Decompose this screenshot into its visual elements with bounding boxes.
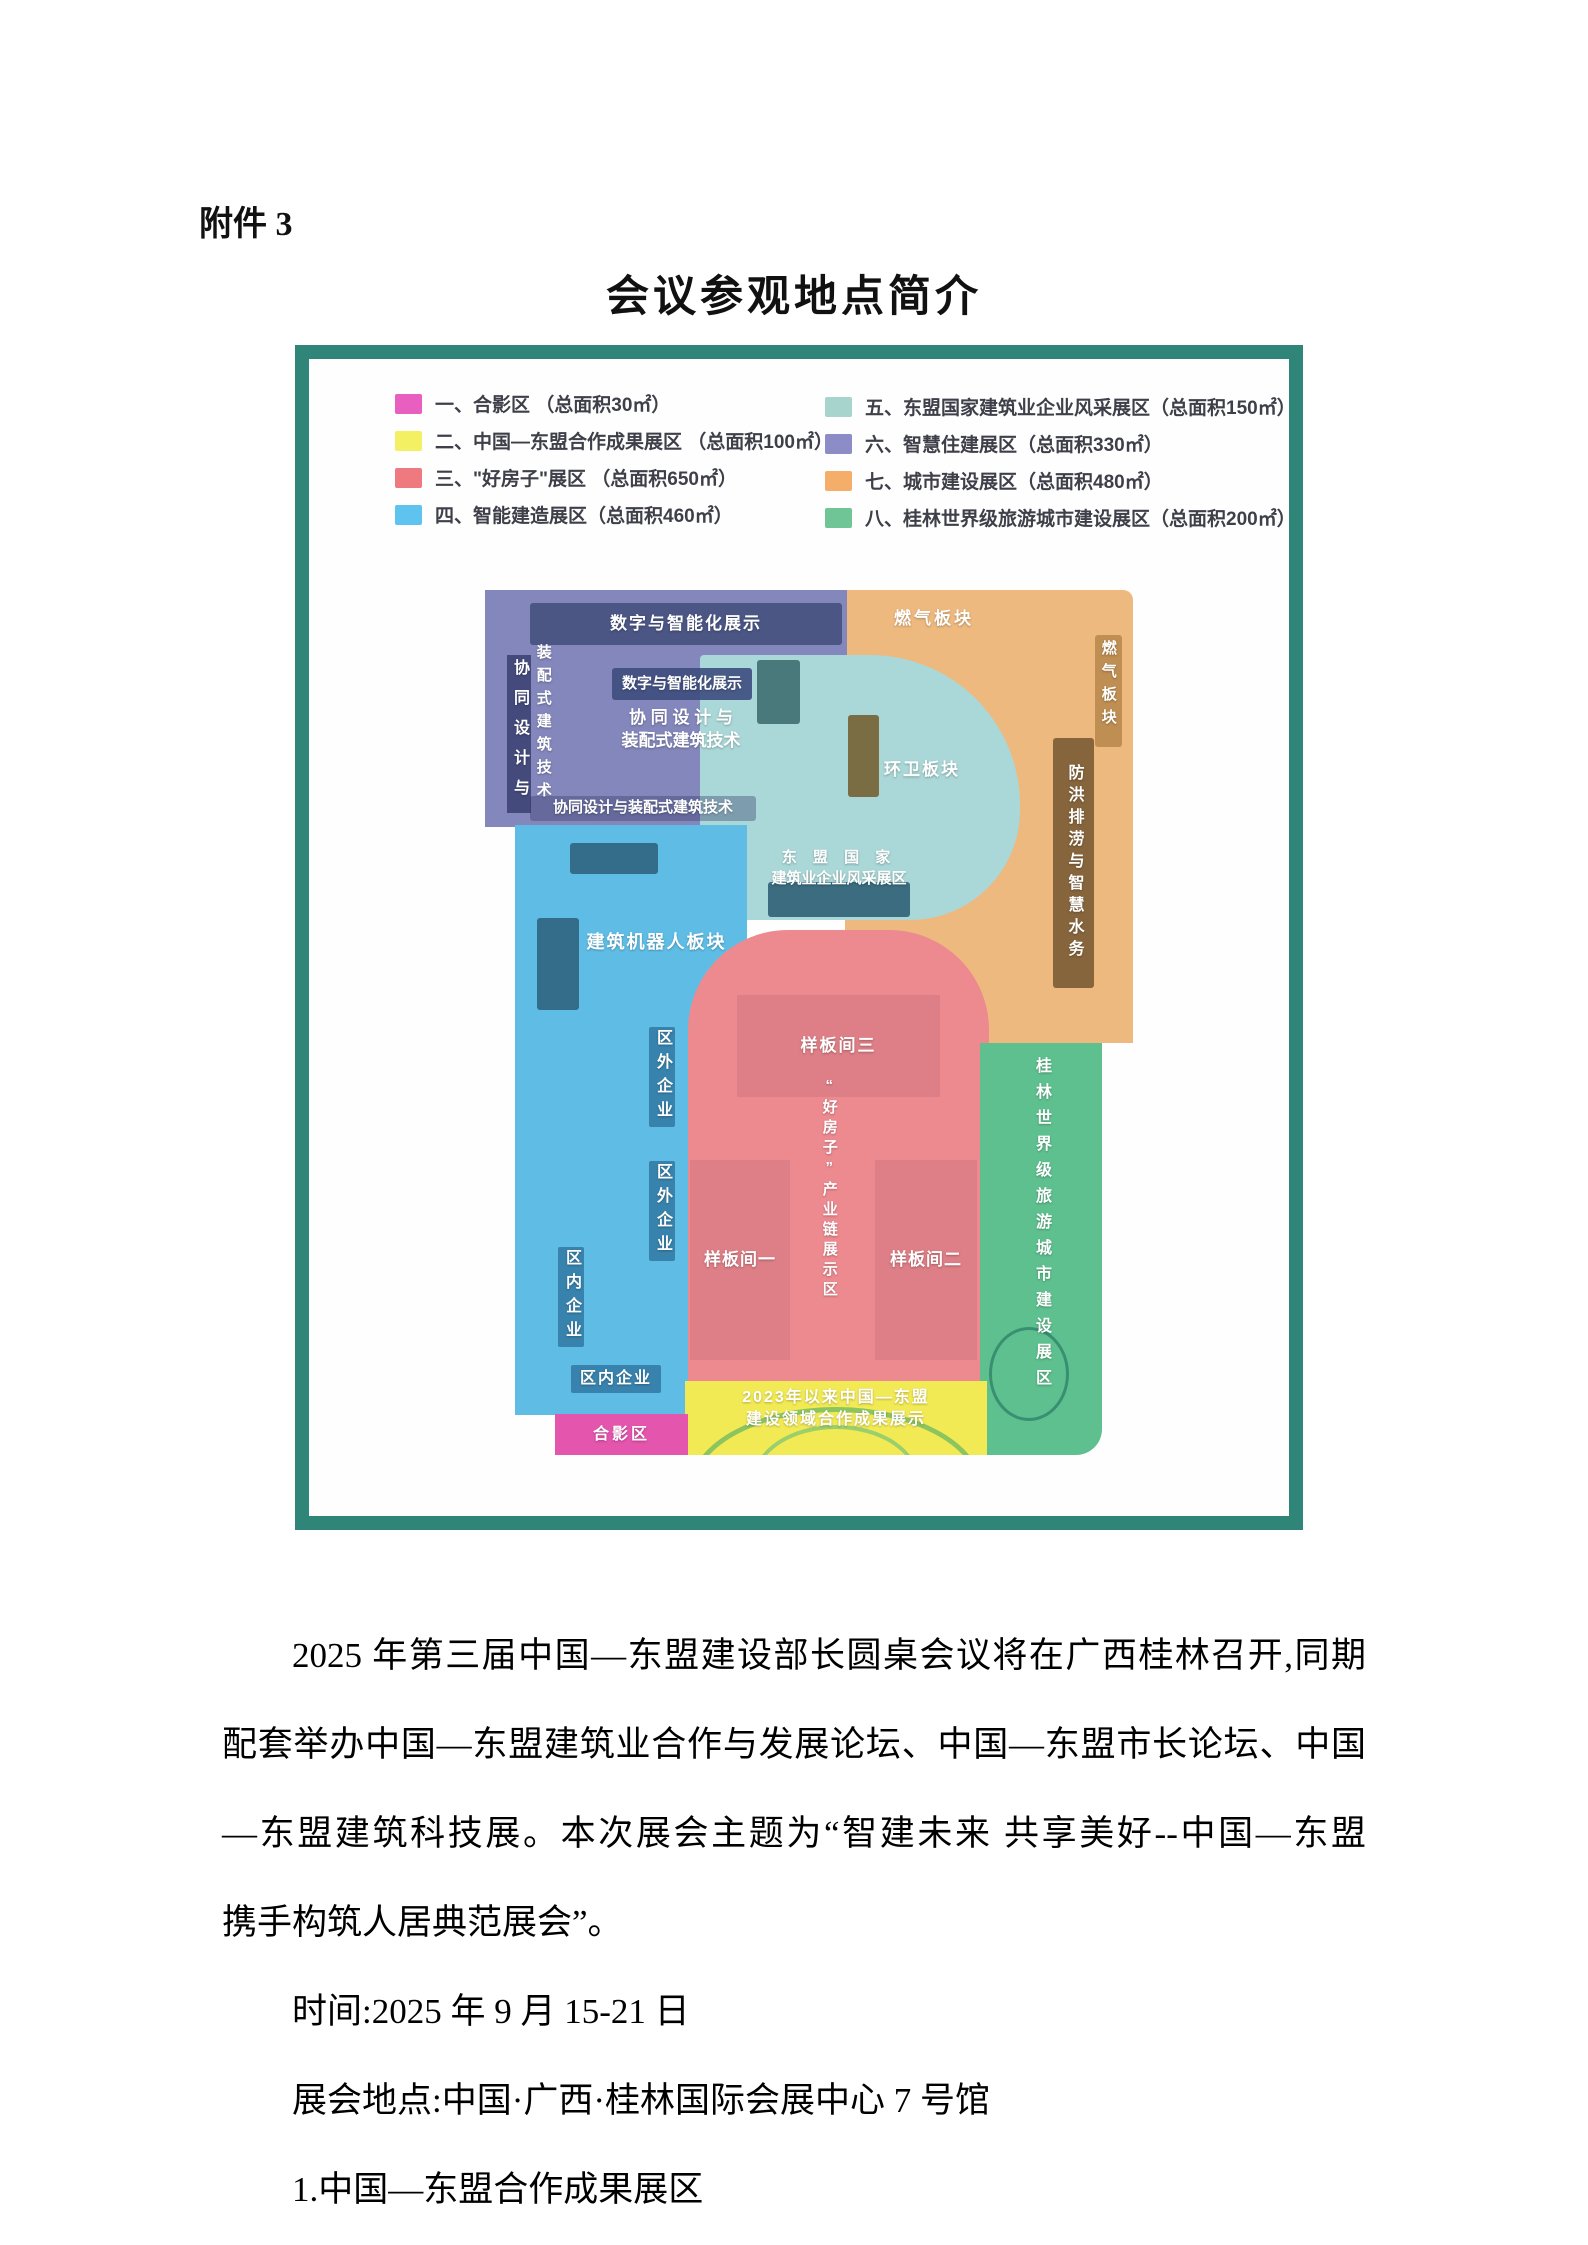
label-guilin-tourism: 桂林世界级旅游城市建设展区: [1031, 1057, 1051, 1437]
legend-swatch: [825, 471, 852, 491]
legend-label: 四、智能建造展区（总面积460㎡）: [435, 501, 733, 528]
body-line: —东盟建筑科技展。本次展会主题为“智建未来 共享美好--中国—东盟: [222, 1789, 1366, 1878]
legend-item: 七、城市建设展区（总面积480㎡）: [825, 469, 1296, 492]
label-inside-enterprise-v: 区内企业: [558, 1247, 584, 1347]
legend-label: 六、智慧住建展区（总面积330㎡）: [865, 430, 1163, 457]
legend-swatch: [395, 505, 422, 525]
label-outside-enterprise-2: 区外企业: [649, 1161, 675, 1261]
legend-item: 五、东盟国家建筑业企业风采展区（总面积150㎡）: [825, 395, 1296, 418]
label-flood-water: 防洪排涝与智慧水务: [1053, 741, 1094, 985]
room-label: 样板间二: [890, 1249, 962, 1270]
photo-strip: [848, 715, 879, 797]
legend-item: 六、智慧住建展区（总面积330㎡）: [825, 432, 1296, 455]
label-digital-display-center: 数字与智能化展示: [612, 668, 752, 700]
label-outside-enterprise-1: 区外企业: [649, 1027, 675, 1127]
body-text: 2025 年第三届中国—东盟建设部长圆桌会议将在广西桂林召开,同期 配套举办中国…: [222, 1611, 1366, 2234]
label-sanitation: 环卫板块: [884, 759, 960, 780]
label-prefab-tech-center: 装配式建筑技术: [609, 730, 753, 751]
room-sample-1: 样板间一: [690, 1160, 790, 1360]
photo-strip: [570, 843, 658, 874]
legend-item: 二、中国—东盟合作成果展区 （总面积100㎡）: [395, 429, 833, 452]
label-gas-right: 燃气板块: [1098, 640, 1117, 732]
label-collab-design-center: 协 同 设 计 与: [609, 707, 753, 728]
legend-swatch: [395, 431, 422, 451]
attachment-label: 附件 3: [199, 196, 293, 245]
site-map-canvas: 一、合影区 （总面积30㎡） 二、中国—东盟合作成果展区 （总面积100㎡） 三…: [309, 359, 1289, 1516]
legend-swatch: [825, 508, 852, 528]
photo-strip: [757, 660, 800, 724]
body-line: 1.中国—东盟合作成果展区: [222, 2145, 1366, 2234]
body-line: 展会地点:中国·广西·桂林国际会展中心 7 号馆: [222, 2056, 1366, 2145]
label-asean-line2: 建筑业企业风采展区: [749, 870, 929, 889]
legend-right-column: 五、东盟国家建筑业企业风采展区（总面积150㎡） 六、智慧住建展区（总面积330…: [825, 395, 1296, 529]
legend-item: 三、"好房子"展区 （总面积650㎡）: [395, 466, 833, 489]
green-ring-decoration: [989, 1327, 1069, 1421]
body-line: 2025 年第三届中国—东盟建设部长圆桌会议将在广西桂林召开,同期: [222, 1611, 1366, 1700]
label-good-house-industry: “好房子”产业链展示区: [819, 1077, 838, 1367]
label-construction-robot: 建筑机器人板块: [564, 931, 749, 954]
legend-label: 二、中国—东盟合作成果展区 （总面积100㎡）: [435, 427, 833, 454]
legend-item: 八、桂林世界级旅游城市建设展区（总面积200㎡）: [825, 506, 1296, 529]
body-line: 配套举办中国—东盟建筑业合作与发展论坛、中国—东盟市长论坛、中国: [222, 1700, 1366, 1789]
document-page: 附件 3 会议参观地点简介 一、合影区 （总面积30㎡） 二、中国—东盟合作成果…: [0, 0, 1588, 2245]
label-achievements-line1: 2023年以来中国—东盟: [685, 1388, 987, 1408]
label-gas-top: 燃气板块: [869, 608, 999, 629]
legend-swatch: [825, 434, 852, 454]
body-line: 时间:2025 年 9 月 15-21 日: [222, 1967, 1366, 2056]
legend-label: 五、东盟国家建筑业企业风采展区（总面积150㎡）: [865, 393, 1296, 420]
body-line: 携手构筑人居典范展会”。: [222, 1878, 1366, 1967]
room-label: 样板间三: [801, 1035, 877, 1056]
label-asean-line1: 东 盟 国 家: [749, 849, 929, 868]
legend-label: 七、城市建设展区（总面积480㎡）: [865, 467, 1163, 494]
room-sample-2: 样板间二: [875, 1160, 977, 1360]
legend-swatch: [395, 468, 422, 488]
legend-label: 八、桂林世界级旅游城市建设展区（总面积200㎡）: [865, 504, 1296, 531]
page-title: 会议参观地点简介: [0, 262, 1588, 324]
label-collab-prefab-bottom: 协同设计与装配式建筑技术: [530, 796, 756, 821]
room-label: 样板间一: [704, 1249, 776, 1270]
legend-label: 三、"好房子"展区 （总面积650㎡）: [435, 464, 737, 491]
legend-item: 四、智能建造展区（总面积460㎡）: [395, 503, 833, 526]
label-prefab-tech-left: 装配式建筑技术: [533, 644, 552, 805]
legend-left-column: 一、合影区 （总面积30㎡） 二、中国—东盟合作成果展区 （总面积100㎡） 三…: [395, 392, 833, 526]
label-achievements-line2: 建设领域合作成果展示: [685, 1410, 987, 1430]
label-digital-display-top: 数字与智能化展示: [530, 603, 842, 645]
label-photo-area: 合影区: [555, 1414, 688, 1455]
label-inside-enterprise-h: 区内企业: [571, 1365, 661, 1393]
legend-swatch: [825, 397, 852, 417]
label-collab-design-left: 协同设计与: [507, 655, 531, 813]
room-sample-3: 样板间三: [737, 995, 940, 1097]
legend-label: 一、合影区 （总面积30㎡）: [435, 390, 670, 417]
legend-swatch: [395, 394, 422, 414]
site-map-figure: 一、合影区 （总面积30㎡） 二、中国—东盟合作成果展区 （总面积100㎡） 三…: [295, 345, 1303, 1530]
legend-item: 一、合影区 （总面积30㎡）: [395, 392, 833, 415]
